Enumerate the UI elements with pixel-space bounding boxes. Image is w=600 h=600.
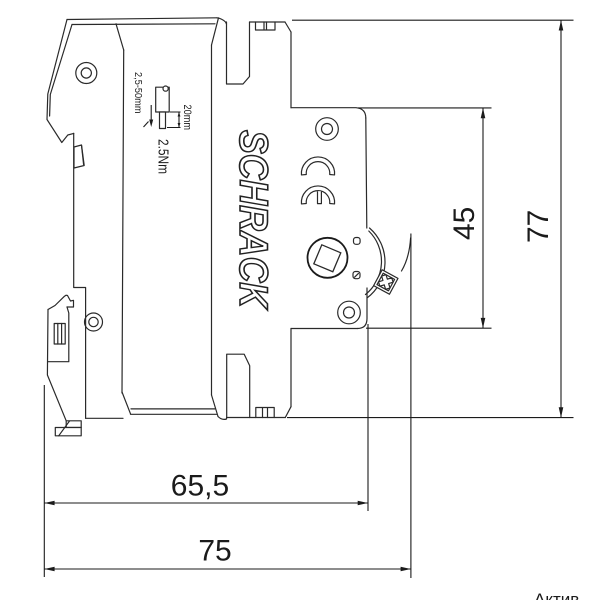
svg-text:75: 75 <box>198 534 231 567</box>
svg-text:SCHRACK: SCHRACK <box>231 130 275 311</box>
svg-text:77: 77 <box>522 210 555 243</box>
svg-text:65,5: 65,5 <box>171 470 229 503</box>
svg-text:45: 45 <box>448 207 481 240</box>
svg-text:2.5Nm: 2.5Nm <box>155 139 172 174</box>
svg-text:20mm: 20mm <box>181 105 193 131</box>
svg-text:2,5-50mm: 2,5-50mm <box>132 72 144 114</box>
svg-text:Актив: Актив <box>534 590 579 600</box>
